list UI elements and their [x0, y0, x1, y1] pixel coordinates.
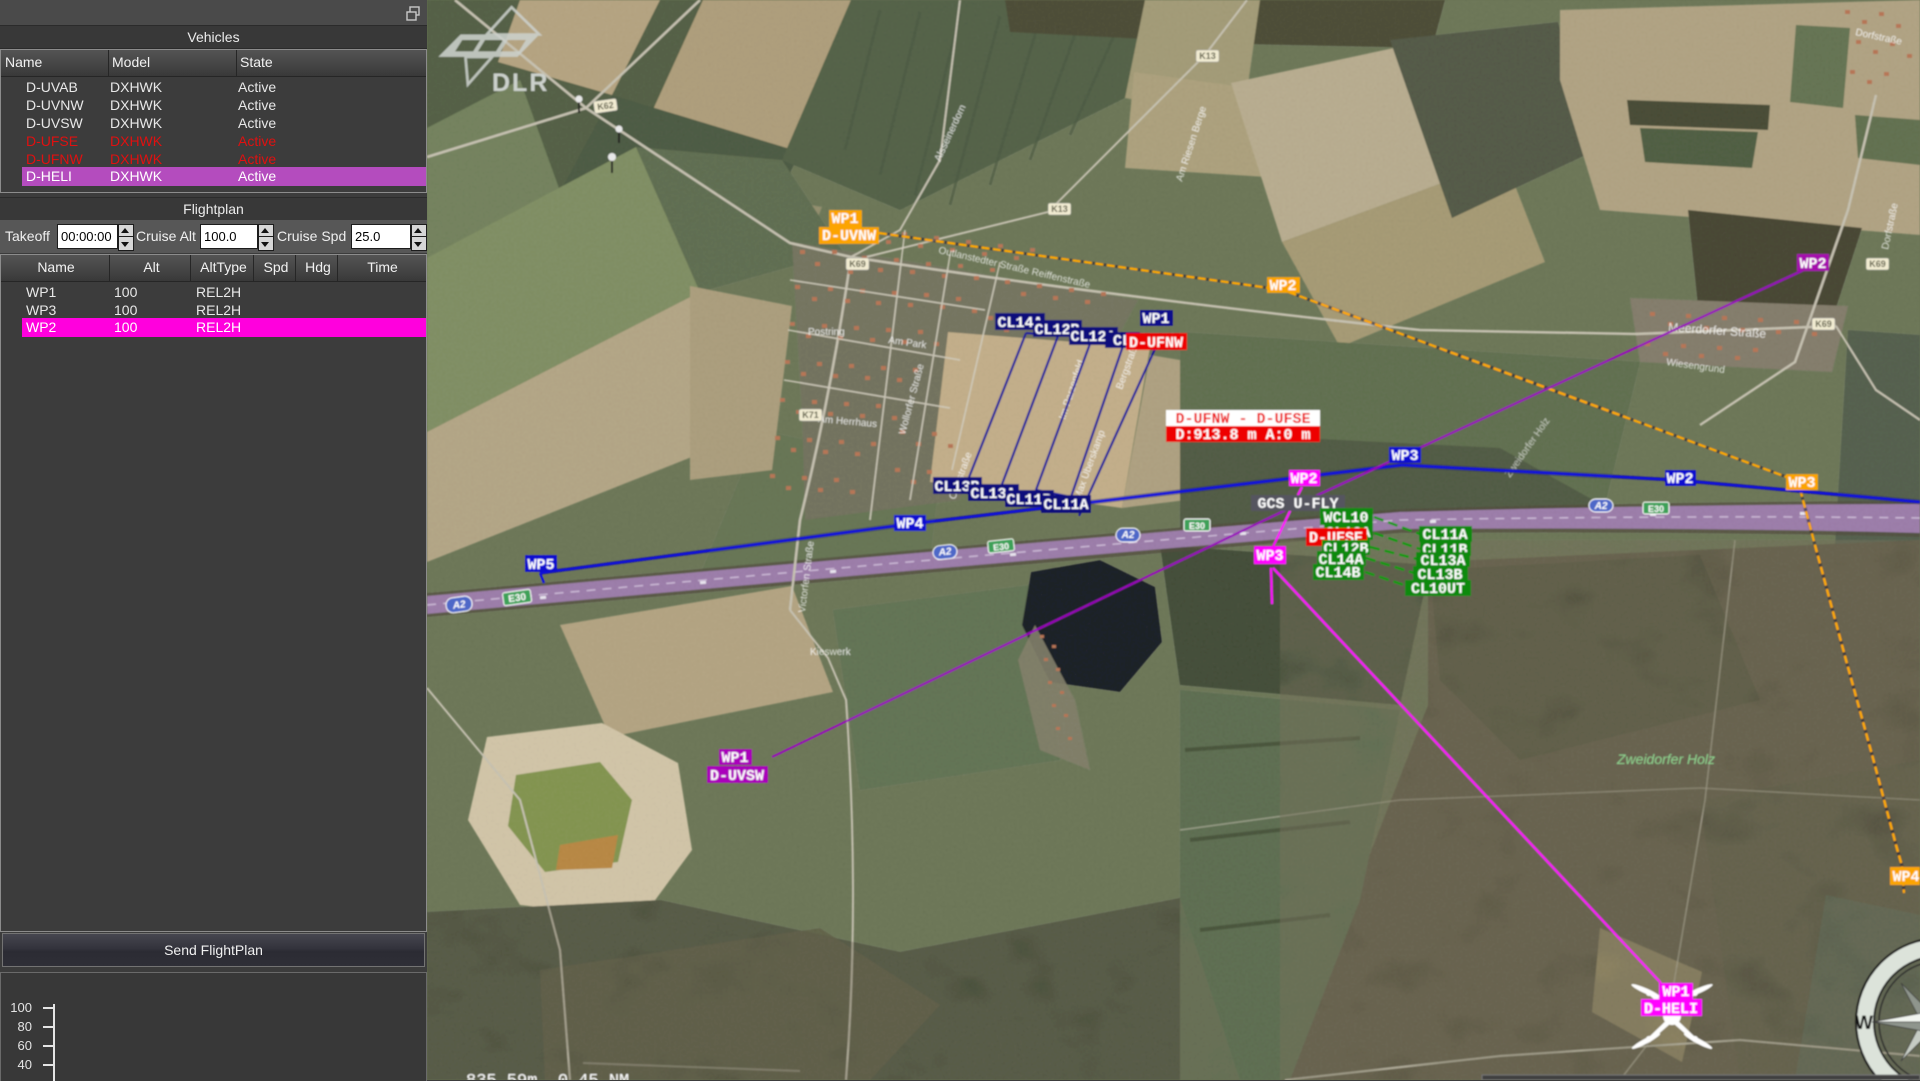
svg-text:WP2: WP2	[1290, 471, 1317, 488]
svg-text:A2: A2	[937, 546, 952, 558]
svg-text:Postring: Postring	[808, 327, 845, 338]
svg-text:A2: A2	[1594, 501, 1608, 512]
svg-text:835.59m, 0.45 NM: 835.59m, 0.45 NM	[466, 1072, 629, 1080]
svg-text:CL14B: CL14B	[1315, 565, 1360, 582]
svg-text:WP1: WP1	[831, 211, 858, 228]
svg-text:WP2: WP2	[1666, 471, 1693, 488]
svg-text:W: W	[1855, 1013, 1873, 1034]
svg-text:K71: K71	[802, 410, 819, 420]
svg-text:DLR: DLR	[492, 69, 549, 97]
svg-text:K69: K69	[1869, 259, 1886, 269]
svg-text:D:913.8 m A:0 m: D:913.8 m A:0 m	[1175, 427, 1310, 444]
svg-text:WP4: WP4	[896, 516, 923, 533]
svg-text:K13: K13	[1051, 204, 1068, 214]
svg-text:WP1: WP1	[721, 750, 748, 767]
svg-text:WP3: WP3	[1256, 548, 1283, 565]
svg-text:WP1: WP1	[1142, 311, 1169, 328]
svg-text:WP2: WP2	[1269, 278, 1296, 295]
svg-text:WP2: WP2	[1799, 256, 1826, 273]
svg-text:E30: E30	[1648, 504, 1664, 514]
svg-text:E30: E30	[1189, 521, 1205, 531]
svg-text:Zweidorfer Holz: Zweidorfer Holz	[1616, 751, 1715, 767]
svg-text:K69: K69	[1815, 319, 1832, 329]
svg-text:K69: K69	[849, 259, 866, 269]
svg-text:WP3: WP3	[1788, 475, 1815, 492]
svg-text:WP4: WP4	[1892, 869, 1919, 886]
svg-text:WP5: WP5	[527, 557, 554, 574]
svg-text:D-UFNW - D-UFSE: D-UFNW - D-UFSE	[1175, 411, 1310, 428]
svg-text:A2: A2	[1121, 530, 1135, 541]
svg-text:D-UVSW: D-UVSW	[710, 768, 764, 785]
svg-text:WP3: WP3	[1391, 448, 1418, 465]
svg-text:E30: E30	[993, 541, 1010, 553]
svg-text:CL10UT: CL10UT	[1411, 581, 1465, 598]
svg-text:D-HELI: D-HELI	[1644, 1001, 1698, 1018]
svg-text:K13: K13	[1199, 51, 1216, 61]
svg-text:D-UVNW: D-UVNW	[822, 228, 876, 245]
svg-text:A2: A2	[451, 599, 467, 612]
svg-text:Kieswerk: Kieswerk	[810, 647, 852, 658]
svg-text:CL11A: CL11A	[1043, 497, 1088, 514]
svg-text:D-UFNW: D-UFNW	[1129, 335, 1183, 352]
svg-text:WP1: WP1	[1662, 984, 1689, 1001]
